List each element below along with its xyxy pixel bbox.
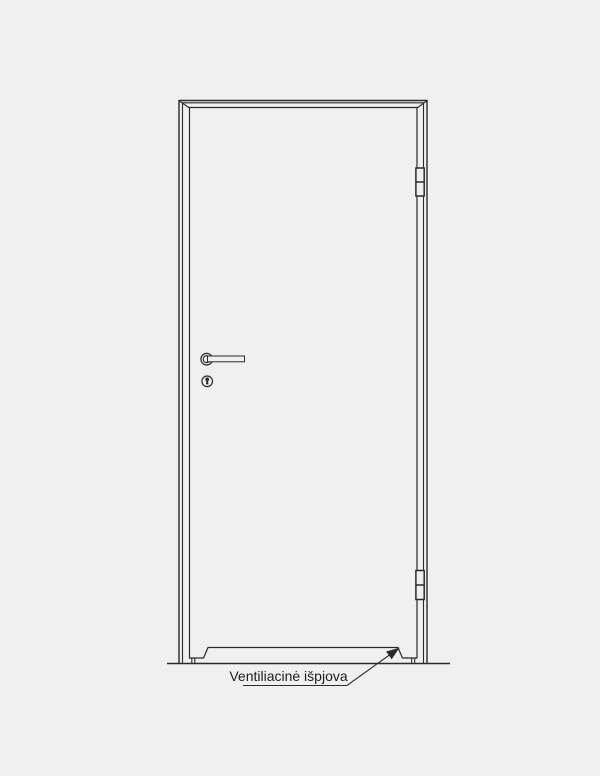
door-elevation-drawing: Ventiliacinė išpjova: [0, 0, 600, 776]
keyhole: [202, 376, 213, 387]
handle-lever-bar: [208, 356, 245, 362]
frame-outer-edge: [179, 101, 427, 664]
frame-detail-edge: [183, 103, 424, 664]
ventilation-cutout-label: Ventiliacinė išpjova: [229, 668, 348, 684]
frame-miter-top-right: [417, 101, 426, 108]
bottom-hinge: [416, 571, 424, 600]
lever-handle: [201, 353, 245, 365]
door-leaf: [190, 108, 418, 659]
leader-arrowhead-icon: [386, 648, 399, 660]
callout: Ventiliacinė išpjova: [229, 648, 399, 686]
top-hinge: [416, 168, 424, 196]
keyhole-cylinder-stem: [206, 381, 208, 385]
canvas: Ventiliacinė išpjova: [0, 0, 600, 776]
door-frame: [179, 101, 427, 664]
frame-miter-top-left: [180, 101, 190, 108]
